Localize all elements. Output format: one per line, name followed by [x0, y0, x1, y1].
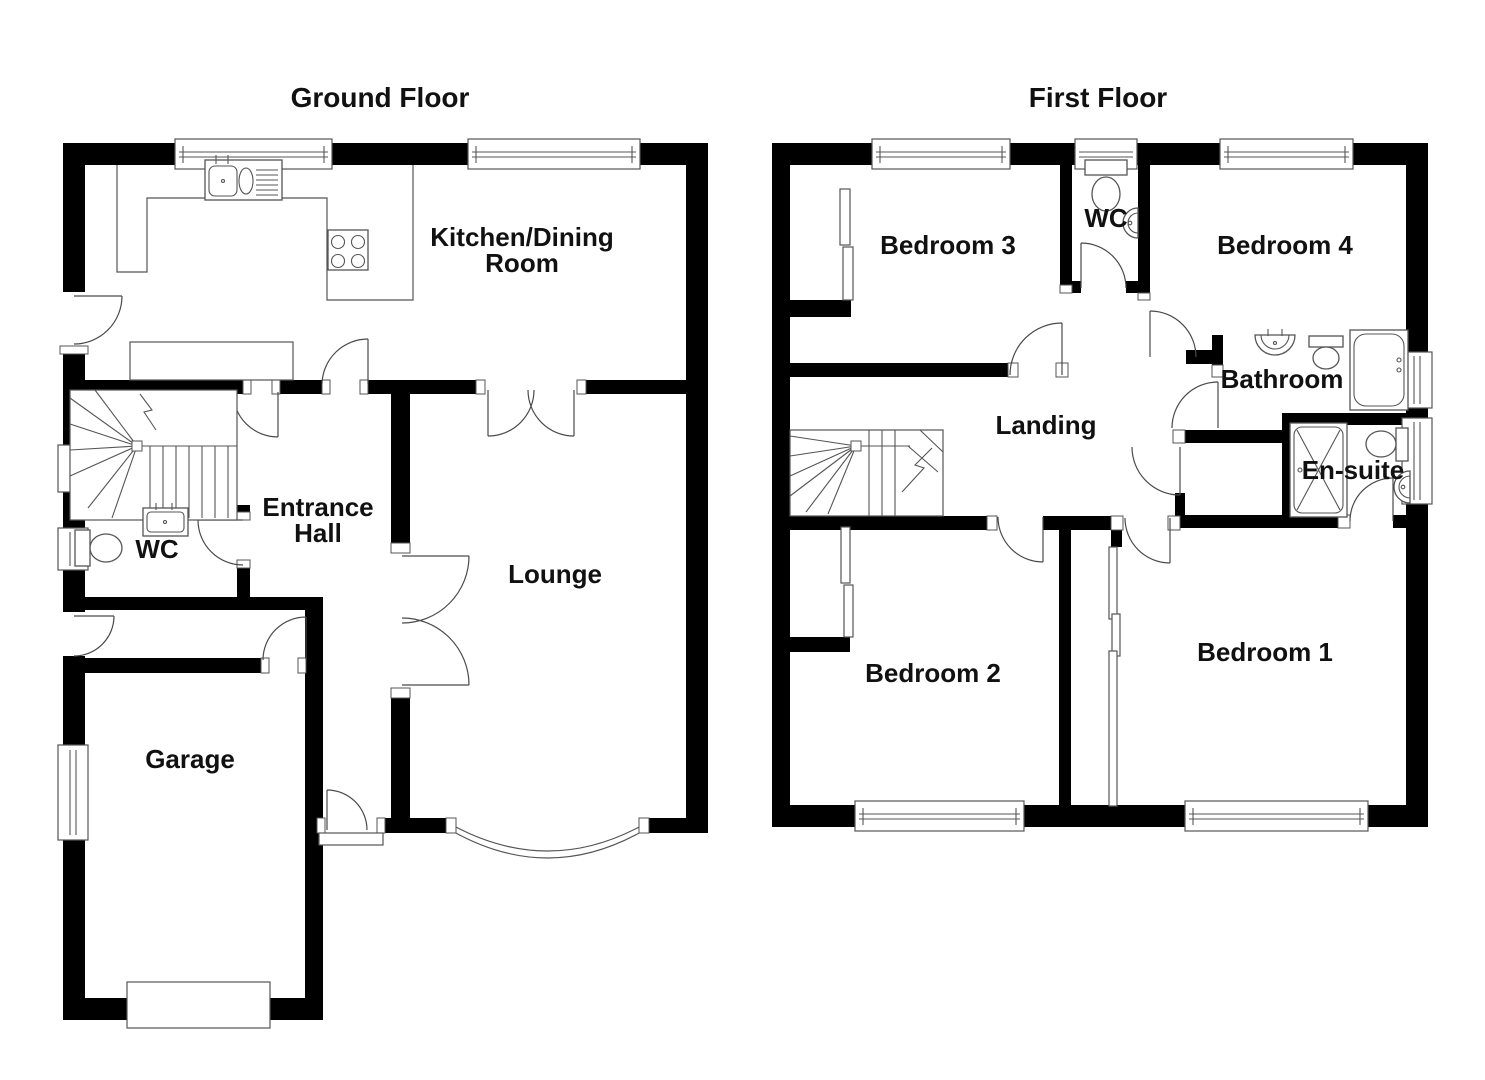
room-label-wc-ground: WC [135, 534, 179, 564]
bedroom1-wardrobe-icon [1109, 547, 1120, 806]
wc-door-icon [198, 520, 243, 565]
bathroom-basin-icon [1255, 329, 1295, 355]
first-floor-plan: First Floor Bedroom 3 WC Bedroom 4 Bathr… [772, 82, 1432, 831]
room-label-kitchen-dining-2: Room [485, 248, 559, 278]
bedroom2-wardrobe-icon [841, 527, 853, 637]
first-floor-labels: First Floor Bedroom 3 WC Bedroom 4 Bathr… [865, 82, 1404, 688]
lounge-bay-window-icon [446, 818, 649, 858]
dining-window-icon [468, 139, 640, 169]
landing-cupboard-door-icon [1132, 447, 1180, 495]
wc-basin-icon [143, 503, 188, 536]
bedroom3-wardrobe-icon [840, 189, 853, 300]
room-label-wc-first: WC [1084, 203, 1128, 233]
room-label-entrance-hall-2: Hall [294, 518, 342, 548]
hall-lounge-double-door-icon [402, 556, 469, 685]
floorplan-drawing: Ground Floor Kitchen/Dining Room Entranc… [0, 0, 1485, 1080]
bedroom4-window-icon [1220, 139, 1353, 169]
bedroom3-window-icon [872, 139, 1010, 169]
room-label-bedroom2: Bedroom 2 [865, 658, 1001, 688]
room-label-lounge: Lounge [508, 559, 602, 589]
bedroom2-window-icon [855, 801, 1024, 831]
wc-toilet-icon [75, 530, 122, 566]
kitchen-hall-door-icon [322, 339, 368, 384]
front-door-icon [319, 790, 383, 845]
bathroom-door-icon [1172, 382, 1218, 428]
kitchen-sink-icon [205, 155, 282, 200]
room-label-bedroom4: Bedroom 4 [1217, 230, 1353, 260]
floorplan-page: Ground Floor Kitchen/Dining Room Entranc… [0, 0, 1485, 1080]
bathtub-icon [1350, 330, 1408, 410]
room-label-bathroom: Bathroom [1221, 364, 1344, 394]
garage-door-icon [127, 982, 270, 1028]
kitchen-lounge-double-door-icon [488, 390, 574, 436]
garage-lobby-door-icon [263, 617, 306, 660]
ground-floor-walls [63, 143, 708, 1020]
bedroom1-window-icon [1185, 801, 1368, 831]
garage-side-window-icon [58, 745, 88, 840]
room-label-garage: Garage [145, 744, 235, 774]
ground-floor-plan: Ground Floor Kitchen/Dining Room Entranc… [58, 82, 708, 1028]
room-label-landing: Landing [995, 410, 1096, 440]
room-label-ensuite: En-suite [1302, 455, 1405, 485]
bedroom1-door-icon [1125, 518, 1170, 563]
ground-floor-stairs-icon [70, 390, 237, 520]
ground-floor-title: Ground Floor [291, 82, 470, 113]
first-floor-stairs-icon [790, 430, 943, 516]
bedroom2-door-icon [998, 517, 1043, 562]
wc-first-door-icon [1081, 243, 1126, 288]
hob-icon [328, 230, 368, 270]
room-label-bedroom3: Bedroom 3 [880, 230, 1016, 260]
first-floor-title: First Floor [1029, 82, 1168, 113]
hall-stairs-door-icon [233, 392, 278, 437]
room-label-bedroom1: Bedroom 1 [1197, 637, 1333, 667]
